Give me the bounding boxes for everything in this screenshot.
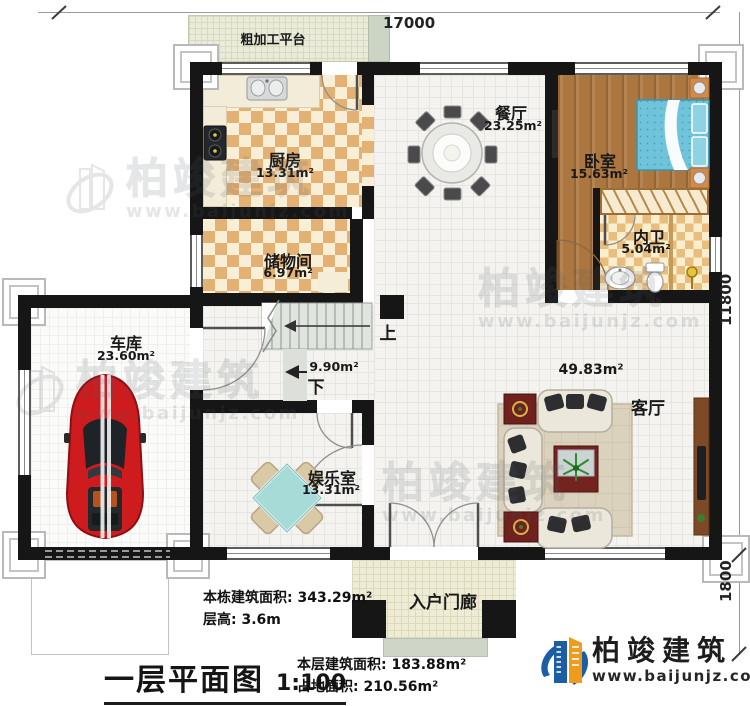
building-stats-left: 本栋建筑面积: 343.29m² 层高: 3.6m (203, 588, 372, 631)
stairs-down-label: 下 (308, 373, 325, 398)
room-area-kitchen: 13.31m² (256, 165, 314, 180)
drawing-title: 一层平面图 (104, 655, 264, 699)
game-table (230, 441, 343, 554)
dimension-right-porch-value: 1800 (717, 560, 735, 602)
bedroom-door (558, 240, 608, 290)
stairs-up-label: 上 (380, 319, 397, 344)
room-area-living: 49.83m² (558, 362, 623, 378)
footprint-area: 占地面积: 210.56m² (297, 677, 466, 699)
gas-stove (204, 126, 226, 160)
dimension-right-main-value: 11800 (717, 274, 735, 326)
bedroom-tv (552, 110, 558, 158)
company-brand: 柏竣建筑 www.baijunjz.com (592, 636, 750, 685)
building-stats-right: 本层建筑面积: 183.88m² 占地面积: 210.56m² (297, 655, 466, 698)
garage-door-interior (203, 328, 265, 390)
bed (637, 100, 709, 170)
room-area-storage: 6.97m² (263, 265, 312, 280)
room-area-ensuite: 5.04m² (621, 241, 670, 256)
room-area-bedroom: 15.63m² (570, 166, 628, 181)
shower-head (687, 267, 697, 289)
tv-cabinet (694, 398, 709, 535)
floor-plan: 17000 11800 1800 粗加工平台 (0, 0, 750, 706)
room-area-dining: 23.25m² (484, 118, 542, 133)
room-label-living: 客厅 (631, 394, 665, 419)
floor-height: 层高: 3.6m (203, 610, 372, 632)
toilet (646, 263, 664, 292)
recreation-door-north (317, 413, 352, 448)
floor-area: 本层建筑面积: 183.88m² (297, 655, 466, 677)
room-label-porch: 入户门廊 (409, 588, 477, 613)
sports-car (64, 375, 146, 538)
company-name: 柏竣建筑 (592, 636, 750, 667)
platform-label: 粗加工平台 (240, 29, 305, 48)
room-area-recreation: 13.31m² (302, 482, 360, 497)
kitchen-back-door (322, 75, 357, 110)
room-area-garage: 23.60m² (97, 348, 155, 363)
garage-roller-door (45, 551, 170, 557)
building-total-area: 本栋建筑面积: 343.29m² (203, 588, 372, 610)
kitchen-sink (247, 77, 287, 100)
stairs-area-label: 9.90m² (309, 359, 358, 374)
coffee-table (554, 446, 598, 492)
company-website: www.baijunjz.com (592, 667, 750, 685)
wash-basin (605, 267, 635, 289)
company-logo-icon (541, 637, 588, 685)
dimension-top-value: 17000 (383, 14, 435, 32)
entry-double-door (390, 503, 478, 547)
